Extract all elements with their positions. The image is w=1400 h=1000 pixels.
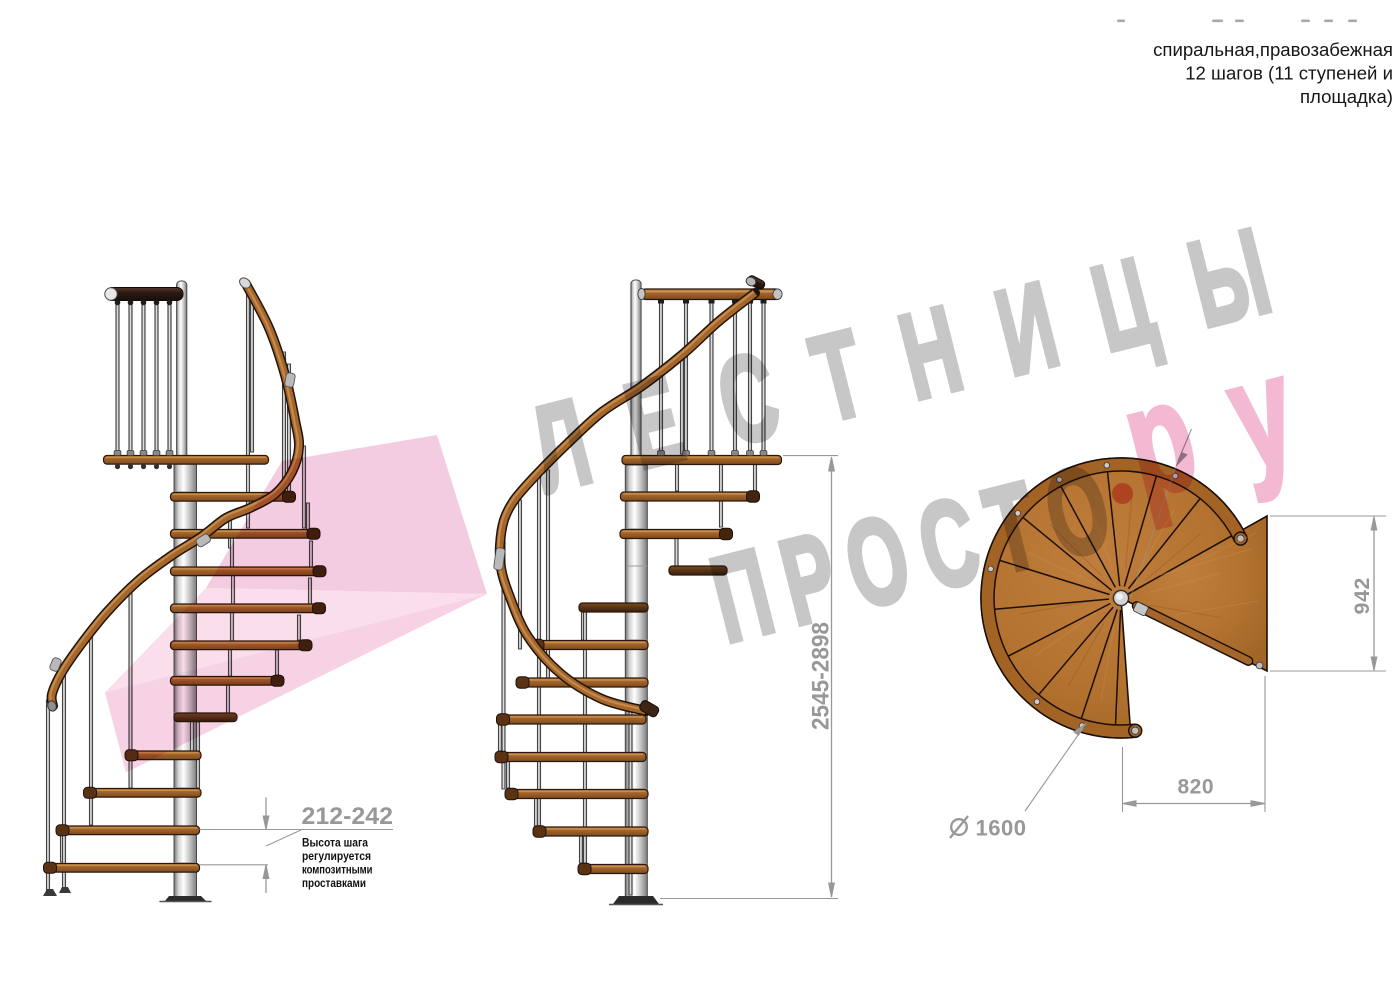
svg-text:спиральная,правозабежная: спиральная,правозабежная — [1153, 39, 1393, 60]
svg-text:композитными: композитными — [302, 863, 373, 877]
svg-text:1600: 1600 — [976, 816, 1027, 841]
svg-text:площадка): площадка) — [1300, 86, 1393, 107]
svg-text:регулируется: регулируется — [302, 849, 371, 863]
svg-text:942: 942 — [1350, 577, 1374, 614]
svg-text:820: 820 — [1178, 776, 1215, 799]
svg-text:212-242: 212-242 — [302, 803, 394, 830]
svg-text:проставками: проставками — [302, 876, 366, 890]
svg-text:Высота шага: Высота шага — [302, 836, 368, 850]
svg-text:12 шагов (11 ступеней и: 12 шагов (11 ступеней и — [1185, 63, 1393, 84]
